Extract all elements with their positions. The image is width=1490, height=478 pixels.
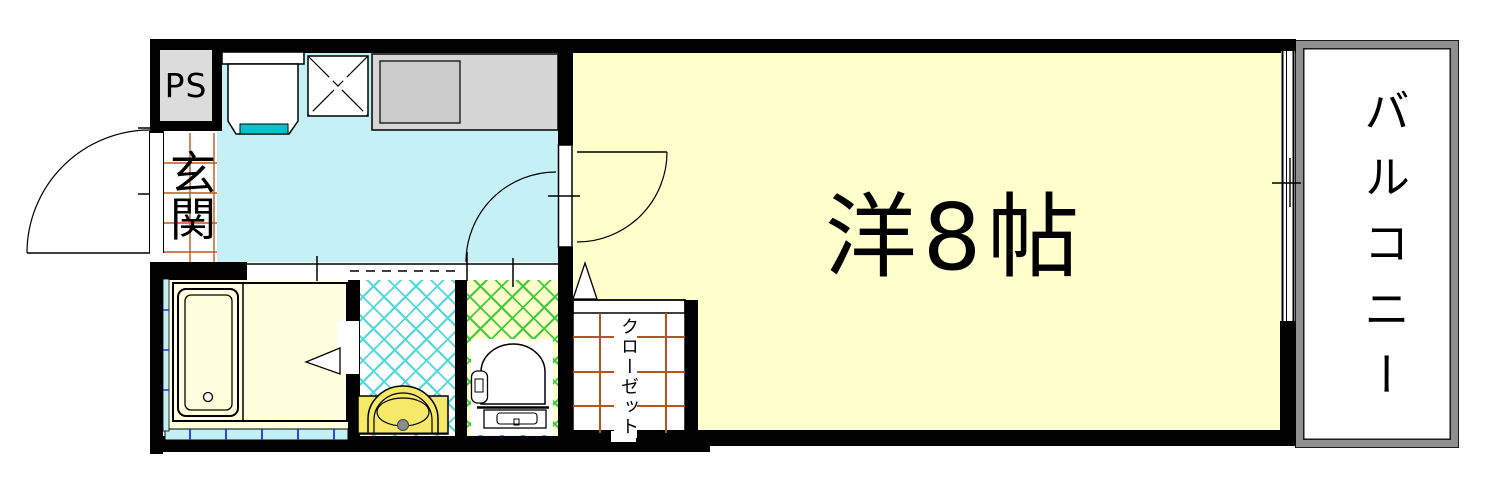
kitchen-counter xyxy=(372,54,558,130)
main-room-label: 洋8帖 xyxy=(730,183,1180,293)
sliding-window xyxy=(1272,51,1301,321)
bathtub xyxy=(173,283,347,421)
toilet-door-arc xyxy=(466,172,556,262)
entrance-label: 玄関 xyxy=(164,140,216,250)
closet-entry-arrow xyxy=(573,263,597,299)
kitchen-sink xyxy=(222,52,304,134)
pipe-space-box: PS xyxy=(150,40,222,131)
toilet xyxy=(471,339,553,435)
sliding-door-band xyxy=(247,262,558,280)
floorplan-canvas: PS 玄関 洋8帖 クローゼット バルコニー xyxy=(0,0,1490,478)
closet-label: クローゼット xyxy=(614,316,637,438)
pipe-space-label: PS xyxy=(165,66,208,105)
room-door xyxy=(466,145,667,262)
wash-basin xyxy=(358,386,448,434)
stove-space xyxy=(308,56,368,116)
bathroom-door xyxy=(306,321,359,374)
balcony-label: バルコニー xyxy=(1345,66,1407,438)
entrance-door xyxy=(27,130,164,253)
